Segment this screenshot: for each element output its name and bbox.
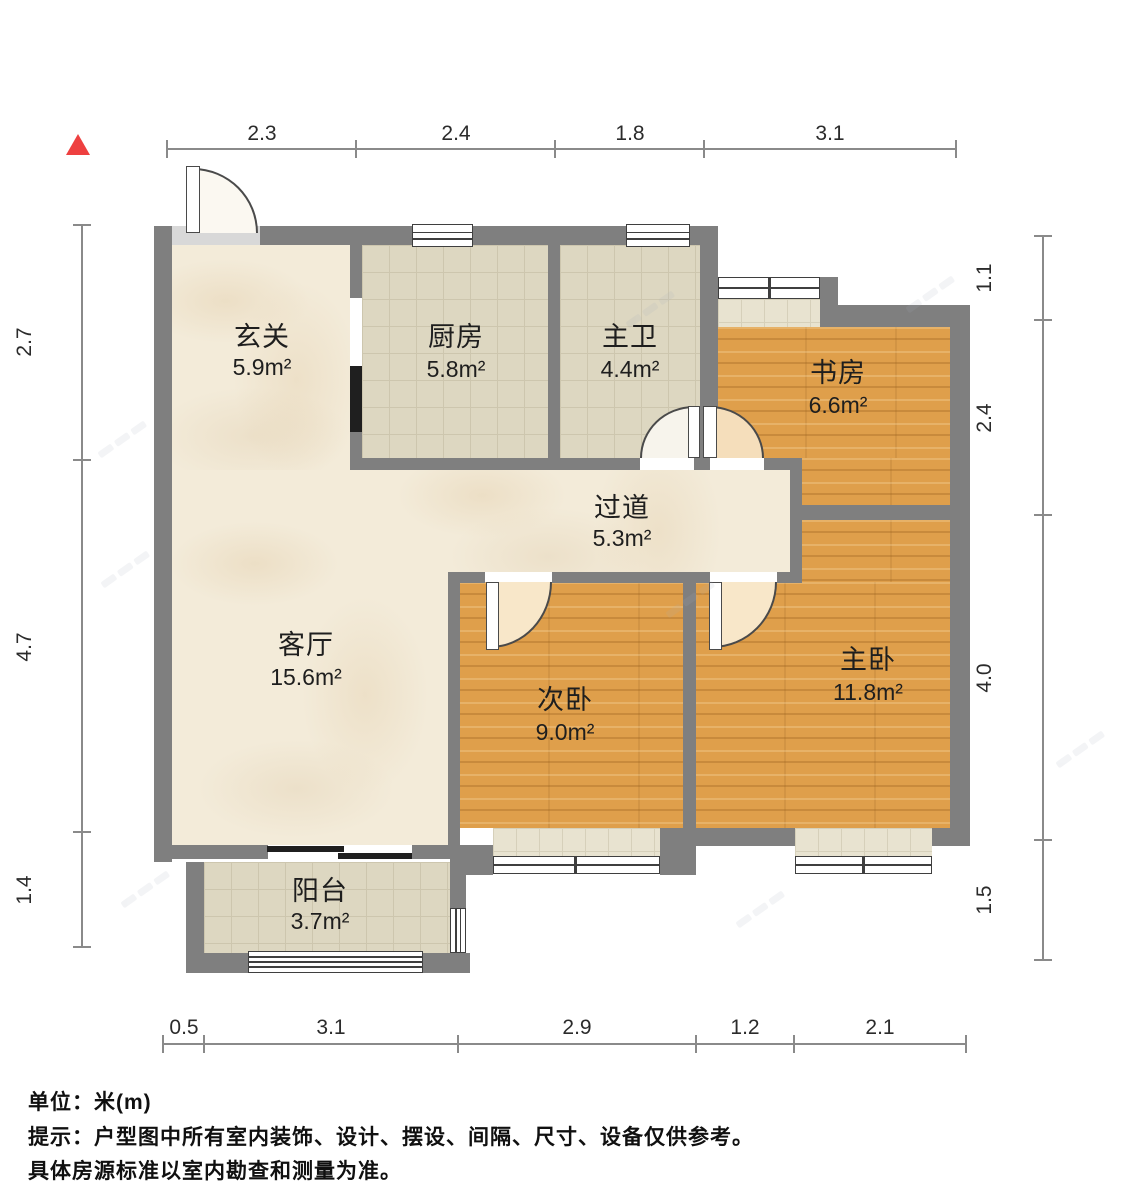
zhuwo-bay-window bbox=[795, 856, 932, 874]
room-area-guodao: 5.3m² bbox=[542, 525, 702, 551]
north-arrow-icon bbox=[66, 134, 90, 155]
zhuwo-door-leaf bbox=[709, 582, 722, 650]
dim-right-2: 2.4 bbox=[973, 378, 997, 458]
zhuwei-door-leaf bbox=[688, 406, 700, 458]
shufang-door-leaf bbox=[703, 406, 717, 458]
watermark bbox=[1050, 724, 1109, 773]
room-area-zhuwei: 4.4m² bbox=[550, 356, 710, 382]
dim-left-2: 4.7 bbox=[13, 607, 37, 687]
balcony-sliding-panel-2 bbox=[338, 853, 412, 859]
room-label-zhuwo: 主卧 bbox=[788, 645, 948, 675]
zhuwo-bay-sill bbox=[795, 828, 932, 856]
room-label-zhuwei: 主卫 bbox=[550, 322, 710, 352]
wall-shufang-zhuwo bbox=[790, 505, 950, 520]
dim-bottom-2: 3.1 bbox=[291, 1016, 371, 1040]
zhuwei-window bbox=[626, 224, 690, 247]
room-label-xuanguan: 玄关 bbox=[182, 322, 342, 352]
room-area-zhuwo: 11.8m² bbox=[788, 679, 948, 705]
room-zhuwo-floor-north bbox=[802, 520, 950, 582]
entrance-door-leaf bbox=[186, 166, 200, 233]
dim-line-right bbox=[1042, 236, 1044, 960]
watermark bbox=[115, 864, 174, 913]
dim-right-1: 1.1 bbox=[973, 238, 997, 318]
shufang-bay-window bbox=[718, 277, 820, 299]
wall-ciwo-west bbox=[448, 572, 460, 845]
entrance-door-arc bbox=[193, 168, 258, 233]
room-area-keting: 15.6m² bbox=[226, 664, 386, 690]
room-area-chufang: 5.8m² bbox=[376, 356, 536, 382]
chufang-sliding-door bbox=[350, 366, 362, 432]
balcony-south-window bbox=[248, 951, 423, 973]
floor-plan-canvas: 玄关 5.9m² 厨房 5.8m² 主卫 4.4m² 书房 6.6m² 过道 5… bbox=[0, 0, 1125, 1201]
balcony-east-window bbox=[450, 908, 466, 953]
wall-bay-stub-ne bbox=[820, 277, 838, 327]
room-label-shufang: 书房 bbox=[758, 358, 918, 388]
dim-line-top bbox=[167, 148, 956, 150]
wall-corridor-north-stub bbox=[694, 458, 710, 470]
room-label-chufang: 厨房 bbox=[376, 322, 536, 352]
dim-top-4: 3.1 bbox=[790, 122, 870, 146]
room-area-xuanguan: 5.9m² bbox=[182, 354, 342, 380]
shufang-bay-sill bbox=[718, 299, 820, 327]
dim-left-1: 2.7 bbox=[13, 302, 37, 382]
dim-top-3: 1.8 bbox=[590, 122, 670, 146]
dim-bottom-5: 2.1 bbox=[840, 1016, 920, 1040]
wall-right bbox=[950, 305, 970, 846]
wall-corridor-south-c bbox=[777, 572, 802, 583]
dim-bottom-3: 2.9 bbox=[537, 1016, 617, 1040]
watermark bbox=[92, 414, 151, 463]
room-label-guodao: 过道 bbox=[542, 493, 702, 523]
wall-corridor-east bbox=[790, 458, 802, 582]
footer-unit-note: 单位：米(m) bbox=[28, 1086, 152, 1116]
ciwo-bay-sill bbox=[493, 828, 660, 856]
room-label-ciwo: 次卧 bbox=[485, 685, 645, 715]
balcony-sliding-panel-1 bbox=[267, 846, 344, 852]
dim-right-3: 4.0 bbox=[973, 638, 997, 718]
dim-top-2: 2.4 bbox=[416, 122, 496, 146]
dim-line-bottom bbox=[163, 1043, 966, 1045]
footer-tip-line1: 提示：户型图中所有室内装饰、设计、摆设、间隔、尺寸、设备仅供参考。 bbox=[28, 1121, 754, 1151]
dim-right-4: 1.5 bbox=[973, 860, 997, 940]
room-label-yangtai: 阳台 bbox=[240, 876, 400, 906]
room-area-shufang: 6.6m² bbox=[758, 392, 918, 418]
wall-ciwo-zhuwo bbox=[683, 582, 696, 828]
wall-bay-stub-se bbox=[932, 828, 970, 846]
footer-tip-line2: 具体房源标准以室内勘查和测量为准。 bbox=[28, 1155, 402, 1185]
room-area-ciwo: 9.0m² bbox=[485, 719, 645, 745]
dim-bottom-4: 1.2 bbox=[705, 1016, 785, 1040]
ciwo-bay-window bbox=[493, 856, 660, 874]
watermark bbox=[95, 544, 154, 593]
chufang-door-opening bbox=[350, 298, 362, 366]
dim-top-1: 2.3 bbox=[222, 122, 302, 146]
room-area-yangtai: 3.7m² bbox=[240, 908, 400, 934]
room-shufang-floor-south bbox=[802, 458, 950, 505]
dim-left-3: 1.4 bbox=[13, 850, 37, 930]
dim-line-left bbox=[81, 225, 83, 947]
ciwo-door-leaf bbox=[486, 582, 499, 650]
wall-recess-south bbox=[683, 828, 795, 846]
wall-left bbox=[154, 226, 172, 862]
chufang-window bbox=[412, 224, 473, 247]
dim-bottom-1: 0.5 bbox=[144, 1016, 224, 1040]
wall-corridor-north-a bbox=[352, 458, 640, 470]
room-label-keting: 客厅 bbox=[226, 630, 386, 660]
watermark bbox=[730, 884, 789, 933]
